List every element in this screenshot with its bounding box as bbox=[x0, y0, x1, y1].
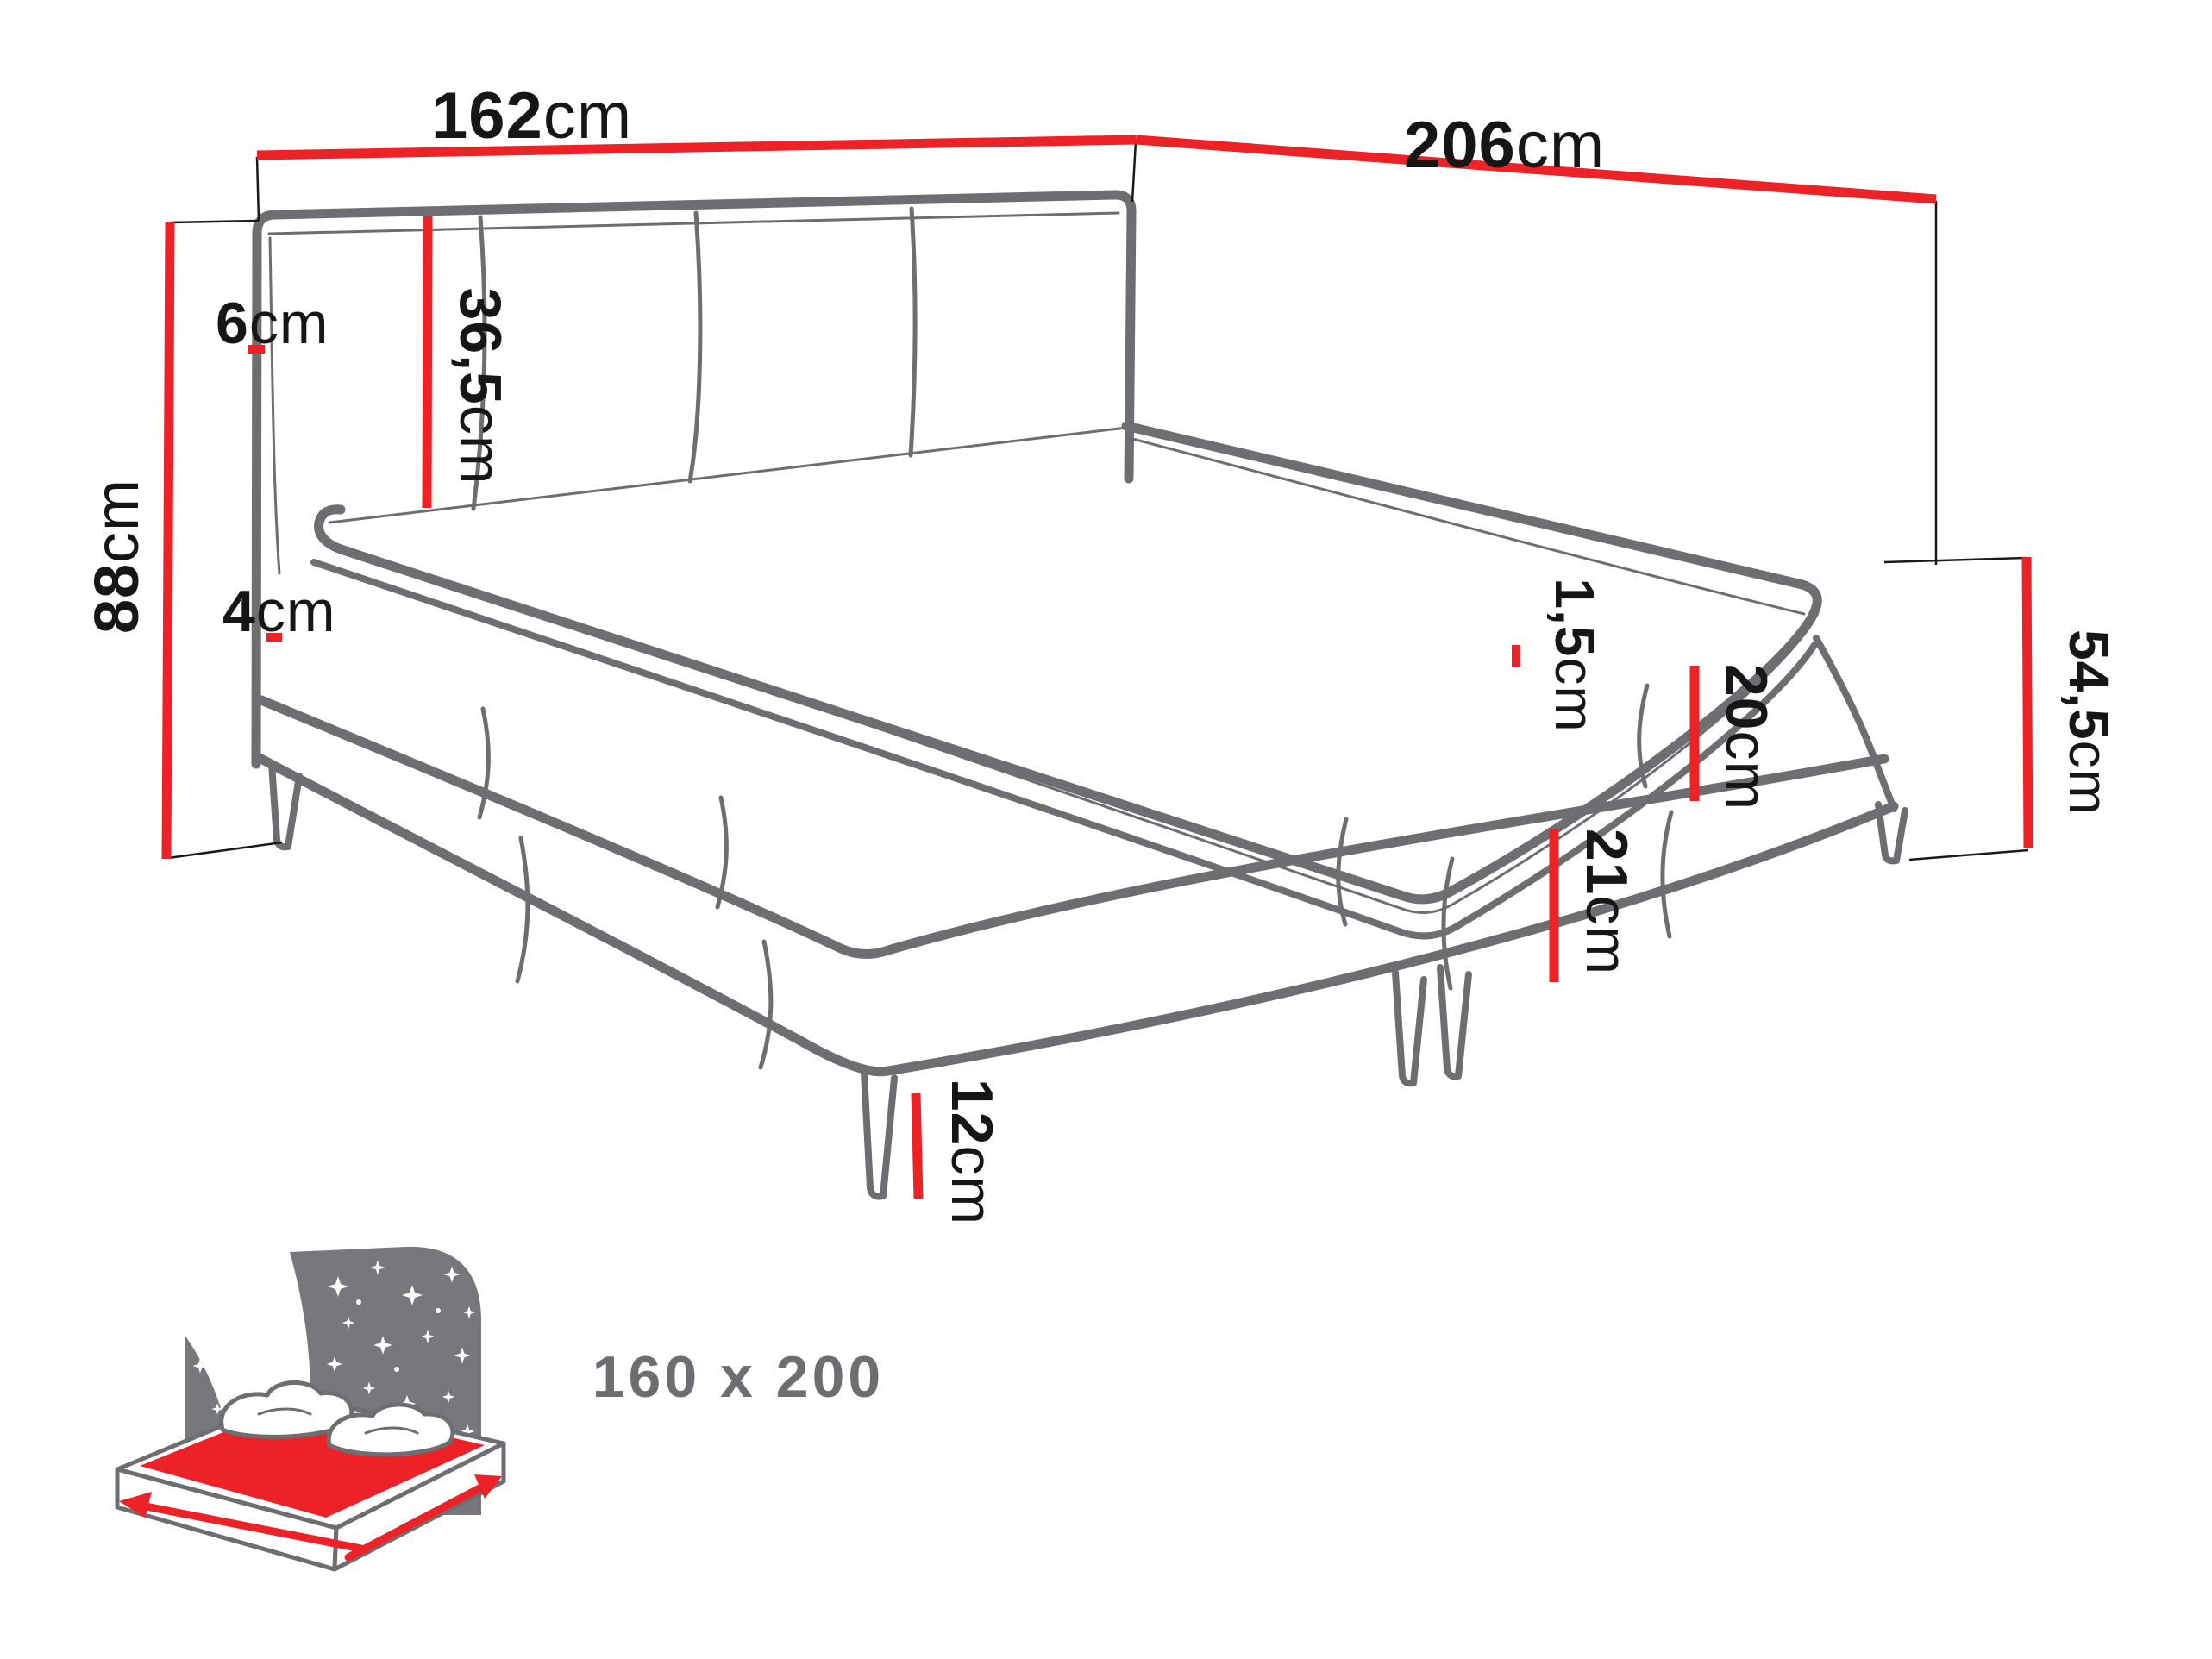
headboard-seam bbox=[911, 209, 915, 455]
diagram-canvas: 162cm 206cm 88cm 6cm 36,5cm 4cm 1,5cm 20… bbox=[0, 0, 2212, 1659]
mattress-size-icon bbox=[117, 1247, 504, 1569]
size-label: 160 x 200 bbox=[592, 1344, 885, 1410]
dimension-headboard-panel-36-5: 36,5cm bbox=[427, 216, 513, 508]
dimension-label: 20cm bbox=[1714, 664, 1779, 811]
leg-front bbox=[864, 1073, 894, 1197]
dimension-label: 6cm bbox=[216, 291, 329, 356]
dimension-label: 1,5cm bbox=[1544, 578, 1606, 732]
dimension-headboard-frame-6: 6cm bbox=[216, 291, 329, 356]
leg-middle bbox=[1395, 973, 1424, 1083]
dimension-width-162: 162cm bbox=[257, 79, 1136, 155]
leg-middle bbox=[1440, 967, 1469, 1076]
headboard-seam bbox=[690, 213, 700, 481]
dimension-label: 54,5cm bbox=[2058, 629, 2120, 816]
dimension-topper-4: 4cm bbox=[222, 579, 335, 644]
dimension-label: 206cm bbox=[1404, 109, 1605, 182]
dimension-lower-box-21: 21cm bbox=[1554, 829, 1639, 982]
dimension-headboard-height-88: 88cm bbox=[83, 222, 170, 859]
dimension-mattress-lip-1-5: 1,5cm bbox=[1516, 578, 1606, 732]
dimension-length-206: 206cm bbox=[1136, 109, 1936, 199]
dimension-label: 88cm bbox=[83, 479, 152, 634]
dimension-label: 21cm bbox=[1574, 829, 1639, 975]
dimension-leg-12: 12cm bbox=[916, 1079, 1005, 1225]
dimension-label: 162cm bbox=[431, 79, 632, 153]
box-outline bbox=[258, 638, 1894, 1072]
dimension-label: 4cm bbox=[222, 579, 335, 644]
dimension-label: 36,5cm bbox=[448, 287, 513, 485]
leg-right bbox=[1878, 804, 1905, 861]
bed-dimension-diagram: 162cm 206cm 88cm 6cm 36,5cm 4cm 1,5cm 20… bbox=[0, 0, 2212, 1659]
dimension-label: 12cm bbox=[939, 1079, 1005, 1225]
dimension-side-height-54-5: 54,5cm bbox=[2027, 557, 2120, 848]
